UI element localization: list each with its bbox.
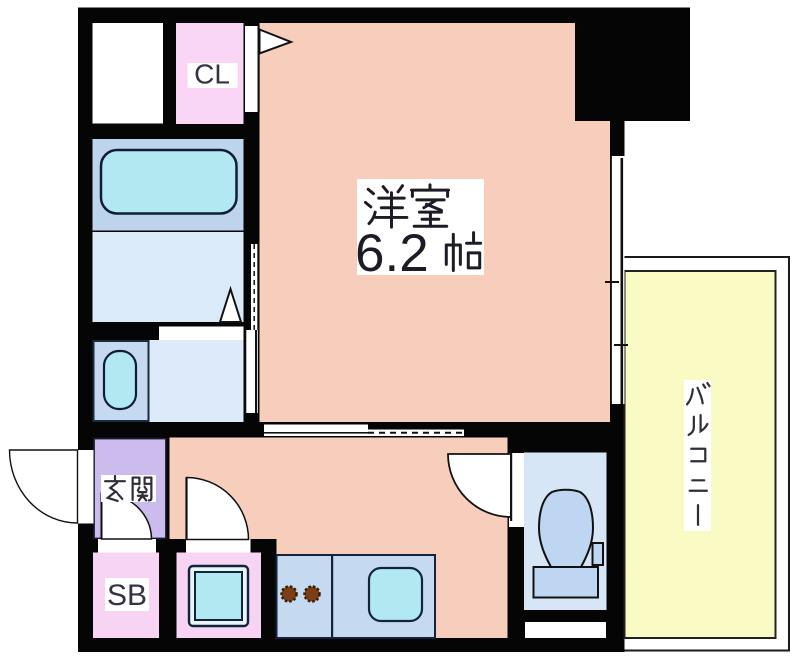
svg-text:CL: CL (194, 59, 230, 90)
svg-text:SB: SB (107, 579, 147, 612)
svg-text:6.2: 6.2 (355, 224, 429, 283)
